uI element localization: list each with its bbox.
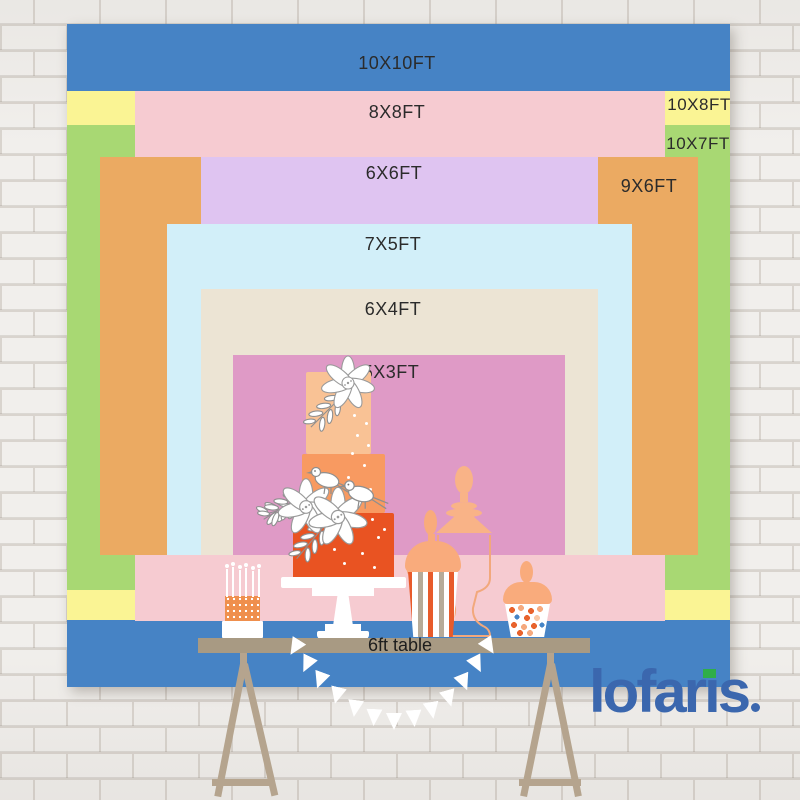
right-trestle-crossbar: [519, 779, 581, 786]
size-label-8x8ft: 8X8FT: [369, 102, 426, 123]
cake-stand-step: [312, 587, 374, 596]
confetti-cup-icon: [505, 604, 550, 637]
logo-text-pre: lofar: [589, 658, 704, 725]
lofaris-backdrop-size-chart: 10X10FT 10X8FT 10X7FT 8X8FT 9X6FT 6X6FT …: [0, 0, 800, 800]
logo-dot-icon: [751, 703, 760, 712]
size-label-10x8ft: 10X8FT: [667, 95, 730, 115]
mini-cake-base: [222, 621, 263, 638]
left-trestle-crossbar: [212, 779, 274, 786]
size-label-7x5ft: 7X5FT: [365, 234, 422, 255]
logo-green-flag-icon: [703, 669, 716, 678]
size-label-9x6ft: 9X6FT: [621, 176, 678, 197]
popcorn-box-knob: [424, 510, 437, 535]
confetti-cup-knob: [520, 561, 533, 583]
birthday-candles-icon: [226, 567, 260, 597]
logo-text-post: s: [718, 658, 748, 725]
size-label-10x7ft: 10X7FT: [666, 134, 729, 154]
size-label-6x4ft: 6X4FT: [365, 299, 422, 320]
lofaris-logo: lofarıs: [589, 662, 760, 722]
flowers-and-birds-icon: [245, 352, 405, 567]
logo-letter-i: ı: [704, 662, 718, 722]
size-label-6x6ft: 6X6FT: [366, 163, 423, 184]
table-size-label: 6ft table: [368, 638, 432, 653]
confetti-cup-lid: [503, 582, 552, 604]
popcorn-box-icon: [407, 572, 459, 637]
mini-cake-top: [225, 596, 260, 621]
size-label-10x10ft: 10X10FT: [358, 53, 436, 74]
